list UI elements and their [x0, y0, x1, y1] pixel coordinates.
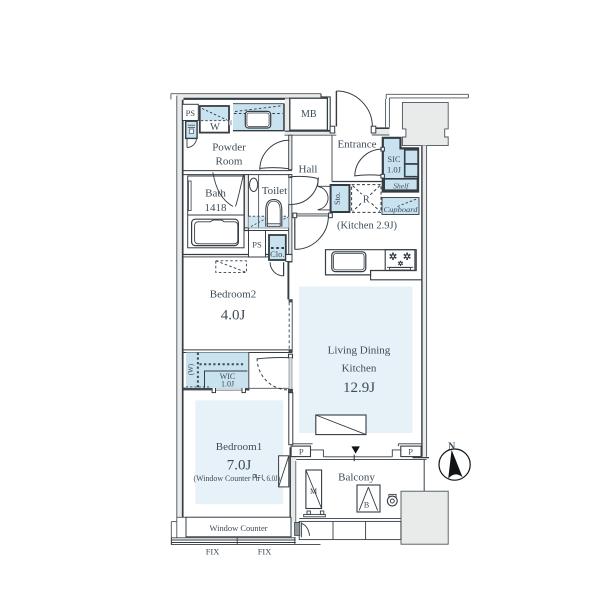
- svg-text:Living Dining: Living Dining: [328, 345, 391, 357]
- svg-text:Sto.: Sto.: [333, 192, 342, 205]
- svg-text:Room: Room: [216, 156, 243, 168]
- svg-text:Cupboard: Cupboard: [384, 205, 418, 214]
- svg-text:Entrance: Entrance: [337, 139, 376, 151]
- svg-text:B: B: [364, 501, 369, 510]
- svg-text:Balcony: Balcony: [338, 472, 375, 484]
- svg-text:(Window Counter: (Window Counter: [194, 474, 251, 483]
- svg-text:P: P: [299, 446, 304, 456]
- svg-text:MB: MB: [301, 109, 317, 120]
- svg-text:Bedroom1: Bedroom1: [216, 441, 262, 453]
- svg-text:1.0J: 1.0J: [221, 379, 234, 388]
- svg-text:(Kitchen 2.9J): (Kitchen 2.9J): [337, 220, 398, 231]
- svg-text:W: W: [210, 122, 220, 133]
- svg-text:(W): (W): [187, 363, 195, 375]
- svg-text:1418: 1418: [205, 202, 228, 214]
- svg-text:P: P: [408, 446, 413, 456]
- svg-text:6.0J): 6.0J): [267, 474, 281, 483]
- svg-text:R: R: [363, 195, 370, 206]
- svg-text:M: M: [310, 487, 317, 496]
- svg-text:7.0J: 7.0J: [227, 458, 252, 474]
- svg-text:PS: PS: [186, 108, 196, 118]
- svg-text:Hall: Hall: [299, 164, 318, 176]
- svg-text:FIX: FIX: [206, 548, 220, 557]
- svg-text:FIX: FIX: [258, 548, 272, 557]
- svg-text:SIC: SIC: [387, 154, 401, 164]
- svg-text:Bath: Bath: [205, 188, 226, 200]
- svg-text:1.0J: 1.0J: [387, 165, 402, 175]
- svg-text:12.9J: 12.9J: [343, 380, 375, 396]
- svg-text:N: N: [448, 442, 456, 453]
- svg-text:Shelf: Shelf: [393, 181, 409, 190]
- svg-text:Clo.: Clo.: [270, 249, 284, 259]
- svg-text:4.0J: 4.0J: [221, 308, 246, 324]
- svg-text:Kitchen: Kitchen: [342, 363, 377, 375]
- svg-text:Toilet: Toilet: [262, 185, 288, 197]
- svg-text:Bedroom2: Bedroom2: [210, 289, 256, 301]
- svg-text:PS: PS: [252, 240, 262, 250]
- svg-text:Window Counter: Window Counter: [210, 524, 268, 533]
- svg-text:Powder: Powder: [212, 142, 246, 154]
